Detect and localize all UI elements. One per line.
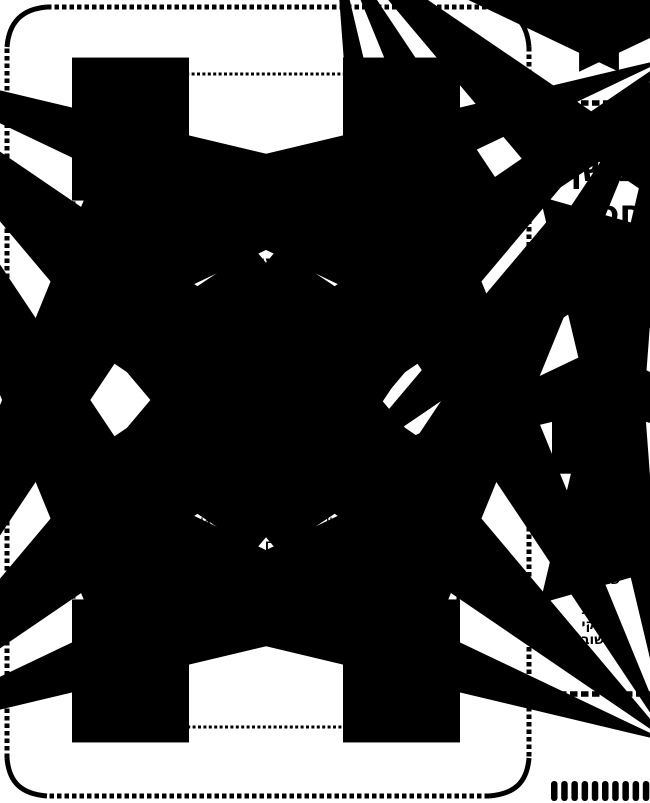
spine-topic: שבועות bbox=[545, 573, 650, 588]
bride-name: ושרה דרעזיל bbox=[225, 561, 338, 585]
dedication-bride-line: ושרה דרעזיל תחי' bbox=[74, 563, 459, 584]
topics-line-1: סוכות • פסח • קרבן פסח bbox=[74, 291, 459, 313]
topics-block: סוכות • פסח • קרבן פסח שבועות • ר"ה • יו… bbox=[74, 291, 459, 357]
book-title: משך חכמה bbox=[74, 186, 459, 245]
spine-volume-title: מועדים bbox=[545, 240, 650, 261]
dedication-block: יו"ל לרגל שמחת נישואי אברהם לייב נ"ו ושר… bbox=[74, 515, 459, 638]
dedication-groom-line: אברהם לייב נ"ו bbox=[74, 536, 459, 557]
title-page: ספר משך חכמה מועדים סוכות • פסח • קרבן פ… bbox=[74, 0, 459, 803]
topics-line-3: פסקי התשובה bbox=[74, 335, 459, 357]
book-spine: ספר משך חכמה מועדים סוכות פסח קרבן פסח ש… bbox=[545, 0, 650, 803]
groom-honorific: נ"ו bbox=[203, 541, 217, 556]
groom-name: אברהם לייב bbox=[224, 534, 330, 558]
dedication-date: ח"י סיון תשס"ו bbox=[74, 624, 459, 639]
spine-topic: קרבן פסח bbox=[545, 557, 650, 572]
topics-line-2: שבועות • ר"ה • יוה"כ bbox=[74, 313, 459, 335]
spine-topic: התשובה bbox=[545, 633, 650, 648]
outer-corner-top-left bbox=[7, 7, 47, 47]
spine-topics-list: סוכות פסח קרבן פסח שבועות ר"ה יוה"כ פסקי… bbox=[545, 527, 650, 649]
scanned-book-title-page: ספר משך חכמה מועדים סוכות • פסח • קרבן פ… bbox=[0, 0, 650, 803]
bride-honorific: תחי' bbox=[195, 568, 218, 583]
spine-title-line-1: משך bbox=[545, 153, 650, 187]
outer-corner-bottom-right bbox=[489, 758, 529, 796]
spine-title-line-2: חכמה bbox=[545, 196, 650, 230]
spine-topic: ר"ה bbox=[545, 588, 650, 603]
spine-topic: סוכות bbox=[545, 527, 650, 542]
spine-topic: יוה"כ bbox=[545, 603, 650, 618]
outer-corner-bottom-left bbox=[7, 758, 47, 796]
spine-topic: פסקי bbox=[545, 618, 650, 633]
dedication-city: טרעס bbox=[74, 590, 459, 616]
spine-topic: פסח bbox=[545, 542, 650, 557]
volume-title: מועדים bbox=[74, 250, 459, 277]
dedication-occasion: יו"ל לרגל שמחת נישואי bbox=[74, 515, 459, 529]
